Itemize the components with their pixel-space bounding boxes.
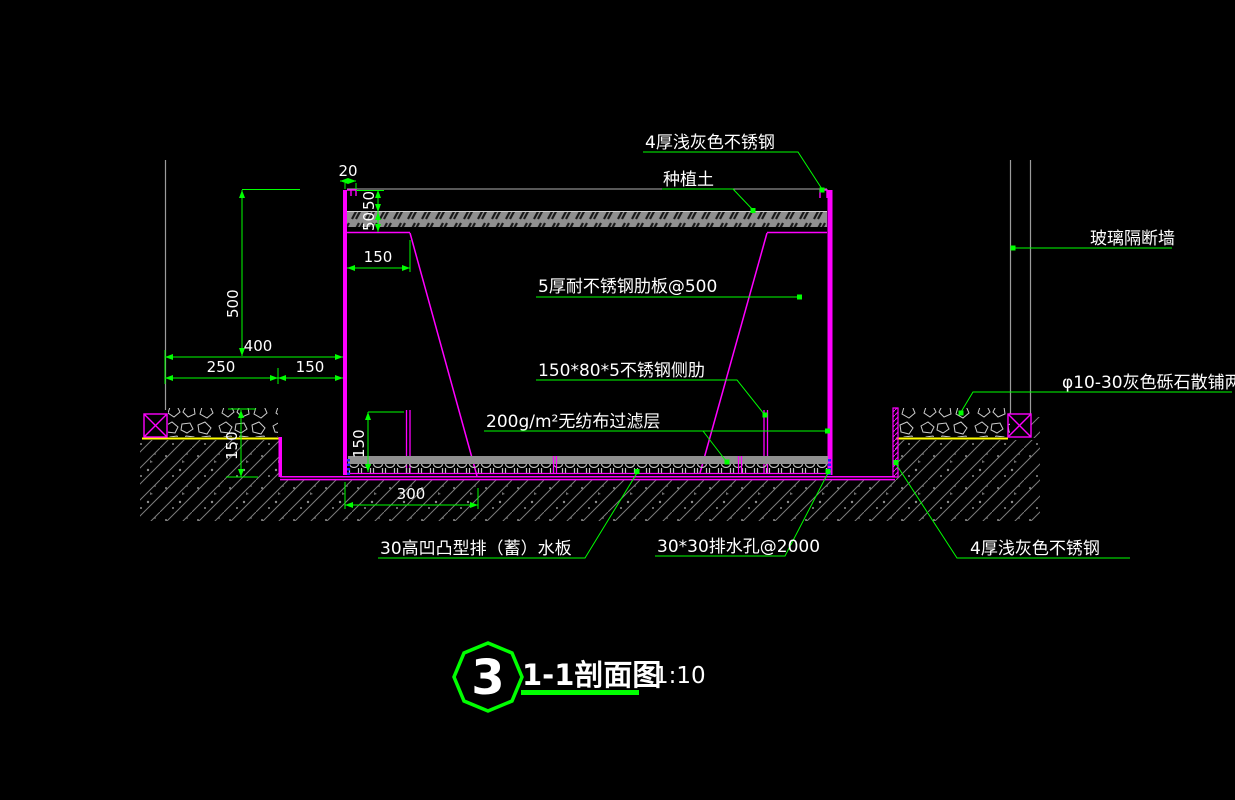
- cad-section-drawing: 20 50 50 150 500 400 250: [0, 0, 1235, 800]
- leader-dot: [1011, 246, 1016, 251]
- dim-label-250: 250: [207, 358, 236, 376]
- label-gravel-note: φ10-30灰色砾石散铺两层: [1062, 373, 1235, 393]
- leader-dot: [959, 411, 964, 416]
- label-top-steel: 4厚浅灰色不锈钢: [645, 133, 775, 153]
- label-planting-soil: 种植土: [663, 170, 714, 190]
- leader-dot: [751, 208, 756, 213]
- dim-label-400: 400: [244, 337, 273, 355]
- leader-dot: [826, 469, 831, 474]
- label-glass-partition: 玻璃隔断墙: [1090, 229, 1175, 249]
- leader-dot: [820, 188, 825, 193]
- section-title: 1-1剖面图: [522, 658, 661, 692]
- leader-dot: [635, 469, 640, 474]
- dim-label-150-top: 150: [364, 248, 393, 266]
- drain-board-scallops: [348, 464, 828, 473]
- leader-dot: [725, 460, 730, 465]
- drawing-canvas: 20 50 50 150 500 400 250: [0, 0, 1235, 800]
- dim-label-150-rib: 150: [350, 429, 368, 458]
- label-drain-board: 30高凹凸型排（蓄）水板: [380, 539, 572, 559]
- label-side-rib: 150*80*5不锈钢侧肋: [538, 361, 705, 381]
- leader-dot: [763, 413, 768, 418]
- dim-label-20: 20: [338, 162, 357, 180]
- soil-band: [347, 211, 827, 227]
- concrete-hatch-right-sliver: [1031, 417, 1040, 438]
- leader-dot: [894, 460, 899, 465]
- filter-fabric-strip: [348, 456, 828, 464]
- planter-left-wall: [343, 190, 347, 475]
- leader-dot: [797, 295, 802, 300]
- dim-label-50-bottom: 50: [360, 212, 378, 231]
- label-rib-plate: 5厚耐不锈钢肋板@500: [538, 277, 717, 297]
- title-underline: [521, 690, 639, 695]
- left-edge-upstand: [279, 437, 283, 477]
- gravel-bed-right: [898, 408, 1010, 437]
- label-bottom-steel: 4厚浅灰色不锈钢: [970, 539, 1100, 559]
- label-filter-layer: 200g/m²无纺布过滤层: [486, 412, 660, 432]
- detail-number: 3: [471, 650, 504, 706]
- label-drain-holes: 30*30排水孔@2000: [657, 537, 820, 557]
- leader-dot: [825, 429, 830, 434]
- dim-label-150-offset: 150: [296, 358, 325, 376]
- section-scale: 1:10: [654, 663, 706, 689]
- dim-label-150-gravel: 150: [223, 431, 241, 460]
- dim-label-500: 500: [224, 289, 242, 318]
- drainage-board-assembly: [280, 456, 895, 480]
- dim-label-300: 300: [397, 485, 426, 503]
- dim-label-50-top: 50: [360, 191, 378, 210]
